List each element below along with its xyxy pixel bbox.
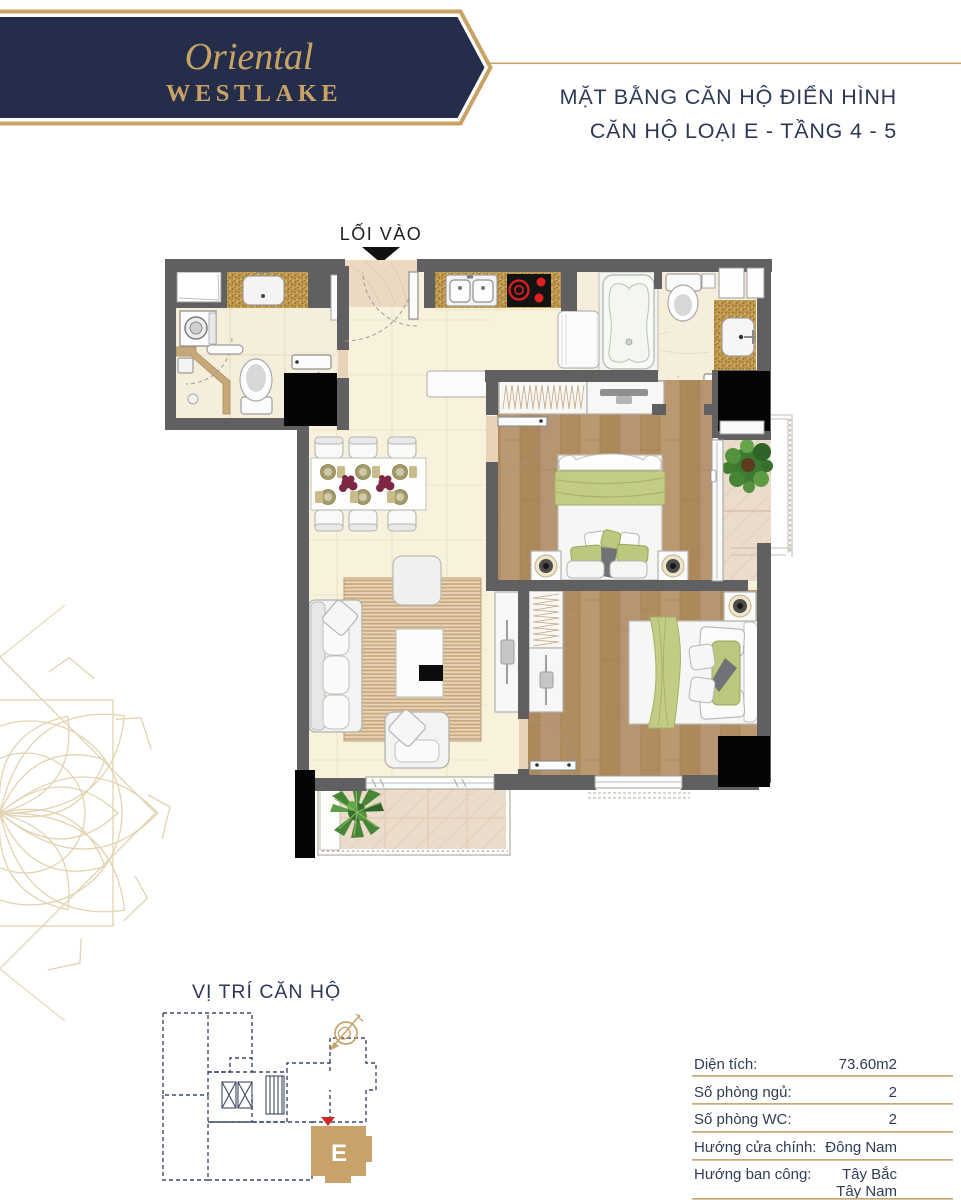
svg-text:Hướng cửa chính:: Hướng cửa chính: xyxy=(694,1139,816,1156)
svg-text:2: 2 xyxy=(889,1084,897,1101)
svg-text:Đông Nam: Đông Nam xyxy=(825,1139,897,1156)
svg-text:LỐI VÀO: LỐI VÀO xyxy=(340,223,423,244)
svg-text:Hướng ban công:: Hướng ban công: xyxy=(694,1166,811,1183)
svg-text:Oriental: Oriental xyxy=(185,36,314,78)
svg-text:MẶT BẰNG CĂN HỘ ĐIỂN HÌNH: MẶT BẰNG CĂN HỘ ĐIỂN HÌNH xyxy=(560,84,897,109)
svg-text:VỊ TRÍ CĂN HỘ: VỊ TRÍ CĂN HỘ xyxy=(192,980,341,1003)
svg-text:Tây Nam: Tây Nam xyxy=(836,1183,897,1200)
svg-text:Diện tích:: Diện tích: xyxy=(694,1056,757,1073)
svg-text:Số phòng ngủ:: Số phòng ngủ: xyxy=(694,1084,792,1101)
svg-text:Số phòng WC:: Số phòng WC: xyxy=(694,1111,792,1128)
svg-text:CĂN HỘ LOẠI E - TẦNG 4 - 5: CĂN HỘ LOẠI E - TẦNG 4 - 5 xyxy=(590,118,897,143)
svg-text:WESTLAKE: WESTLAKE xyxy=(166,80,342,107)
svg-text:E: E xyxy=(331,1140,347,1167)
svg-text:2: 2 xyxy=(889,1111,897,1128)
svg-text:Tây Bắc: Tây Bắc xyxy=(842,1166,898,1183)
svg-text:73.60m2: 73.60m2 xyxy=(839,1056,897,1073)
